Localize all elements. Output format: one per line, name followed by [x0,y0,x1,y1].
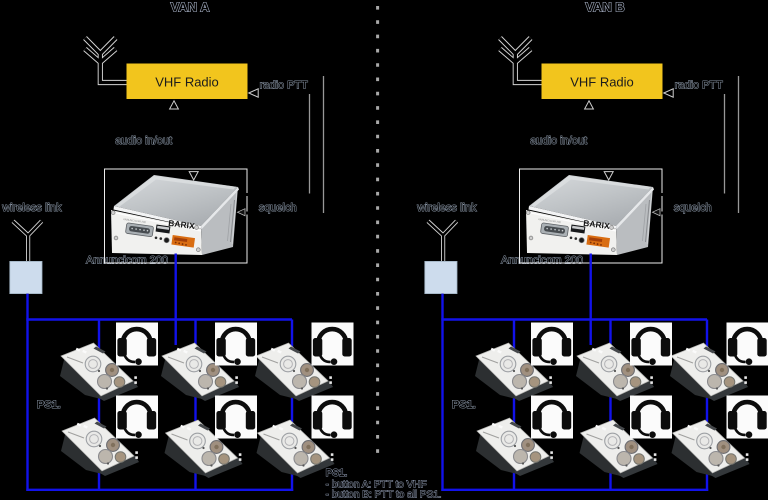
svg-text:- button B: PTT to all PS1.: - button B: PTT to all PS1. [326,490,442,500]
svg-text:VAN B: VAN B [585,0,624,15]
svg-text:PS1.: PS1. [326,468,348,479]
svg-text:VAN A: VAN A [171,0,211,15]
